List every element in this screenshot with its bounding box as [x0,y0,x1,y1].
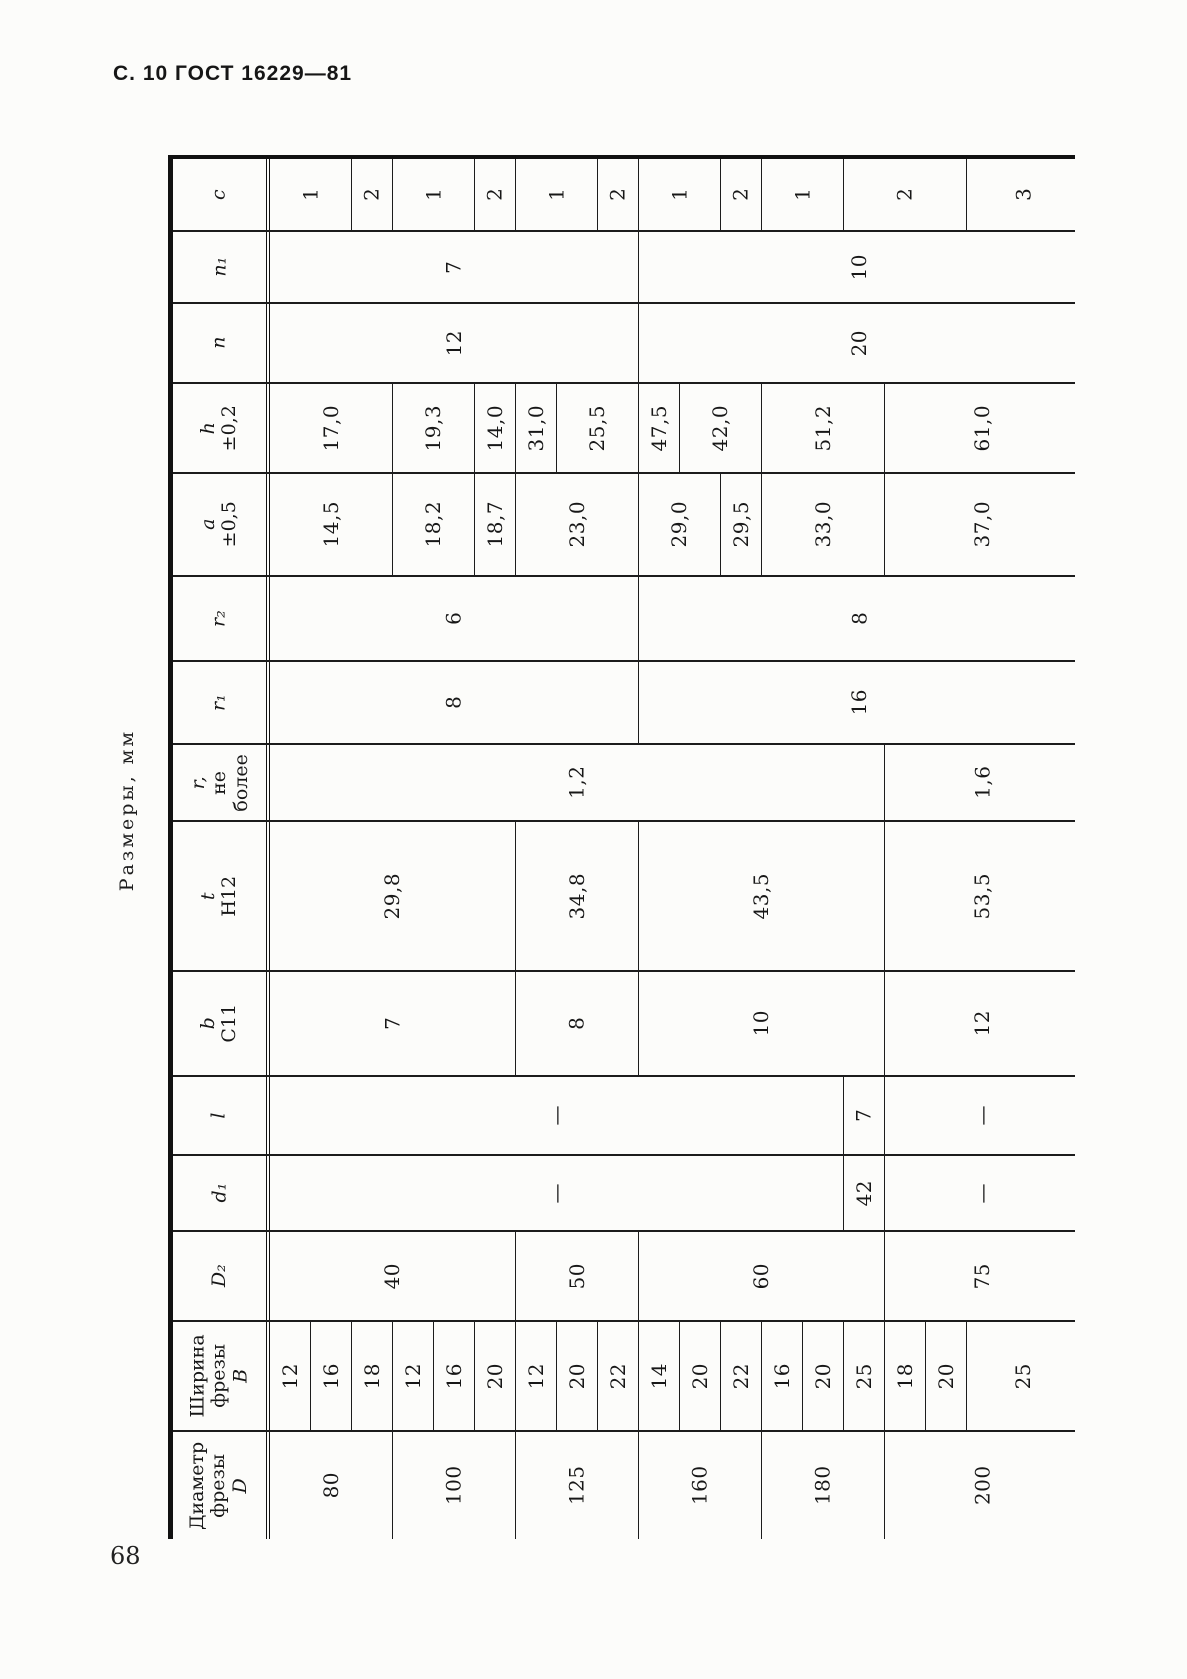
size-table: c12121212123n₁710n1220h±0,217,019,314,03… [168,155,1075,1539]
table-row-n1: n₁710 [173,232,1075,304]
cell-D-5: 180 [762,1432,885,1539]
cell-B-4: 12 [393,1322,434,1430]
row-header-l: l [173,1077,270,1154]
row-header-r: r,неболее [173,745,270,820]
cell-t-1: 29,8 [270,822,516,970]
table-row-h: h±0,217,019,314,031,025,547,542,051,261,… [173,384,1075,474]
cell-c-10: 2 [844,159,967,230]
cell-a-4: 23,0 [516,474,639,575]
cell-r2-2: 8 [639,577,1080,660]
cell-B-10: 14 [639,1322,680,1430]
table-row-d1: d₁—42— [173,1156,1075,1232]
cell-D-3: 125 [516,1432,639,1539]
cell-h-6: 47,5 [639,384,680,472]
table-row-B: ШиринафрезыB1216181216201220221420221620… [173,1322,1075,1432]
table-row-r: r,неболее1,21,6 [173,745,1075,822]
page-header: С. 10 ГОСТ 16229—81 [113,62,352,86]
cell-B-1: 12 [270,1322,311,1430]
cell-b-3: 10 [639,972,885,1075]
cell-r-1: 1,2 [270,745,885,820]
cell-B-12: 22 [721,1322,762,1430]
cell-b-2: 8 [516,972,639,1075]
cell-c-9: 1 [762,159,844,230]
cell-h-3: 14,0 [475,384,516,472]
table-row-t: tH1229,834,843,553,5 [173,822,1075,972]
cell-r1-1: 8 [270,662,639,743]
cell-r-2: 1,6 [885,745,1080,820]
cell-c-8: 2 [721,159,762,230]
cell-B-7: 12 [516,1322,557,1430]
cell-t-3: 43,5 [639,822,885,970]
cell-a-2: 18,2 [393,474,475,575]
table-row-r1: r₁816 [173,662,1075,745]
cell-h-7: 42,0 [680,384,762,472]
cell-b-4: 12 [885,972,1080,1075]
table-row-l: l—7— [173,1077,1075,1156]
table-row-D2: D₂40506075 [173,1232,1075,1322]
cell-B-13: 16 [762,1322,803,1430]
cell-c-2: 2 [352,159,393,230]
cell-B-11: 20 [680,1322,721,1430]
cell-c-5: 1 [516,159,598,230]
cell-B-17: 20 [926,1322,967,1430]
row-header-d1: d₁ [173,1156,270,1230]
cell-n1-2: 10 [639,232,1080,302]
cell-D2-2: 50 [516,1232,639,1320]
cell-l-2: 7 [844,1077,885,1154]
cell-r1-2: 16 [639,662,1080,743]
cell-B-2: 16 [311,1322,352,1430]
cell-D-1: 80 [270,1432,393,1539]
cell-a-5: 29,0 [639,474,721,575]
cell-B-8: 20 [557,1322,598,1430]
table-row-c: c12121212123 [173,159,1075,232]
row-header-r1: r₁ [173,662,270,743]
cell-D2-4: 75 [885,1232,1080,1320]
row-header-D: ДиаметрфрезыD [173,1432,270,1539]
row-header-a: a±0,5 [173,474,270,575]
cell-D2-3: 60 [639,1232,885,1320]
cell-a-7: 33,0 [762,474,885,575]
cell-c-1: 1 [270,159,352,230]
cell-h-5: 25,5 [557,384,639,472]
table-row-b: bC11781012 [173,972,1075,1077]
cell-D-6: 200 [885,1432,1080,1539]
cell-r2-1: 6 [270,577,639,660]
cell-a-3: 18,7 [475,474,516,575]
cell-c-6: 2 [598,159,639,230]
cell-a-6: 29,5 [721,474,762,575]
cell-h-8: 51,2 [762,384,885,472]
row-header-h: h±0,2 [173,384,270,472]
cell-B-5: 16 [434,1322,475,1430]
row-header-B: ШиринафрезыB [173,1322,270,1430]
cell-c-3: 1 [393,159,475,230]
cell-B-16: 18 [885,1322,926,1430]
cell-D2-1: 40 [270,1232,516,1320]
cell-B-15: 25 [844,1322,885,1430]
cell-D-4: 160 [639,1432,762,1539]
table-row-a: a±0,514,518,218,723,029,029,533,037,0 [173,474,1075,577]
cell-B-9: 22 [598,1322,639,1430]
row-header-n: n [173,304,270,382]
cell-B-18: 25 [967,1322,1080,1430]
cell-h-4: 31,0 [516,384,557,472]
cell-h-1: 17,0 [270,384,393,472]
cell-c-7: 1 [639,159,721,230]
page-number: 68 [110,1542,141,1570]
cell-h-9: 61,0 [885,384,1080,472]
cell-d1-1: — [270,1156,844,1230]
cell-t-4: 53,5 [885,822,1080,970]
table-row-D: ДиаметрфрезыD80100125160180200 [173,1432,1075,1539]
table-row-n: n1220 [173,304,1075,384]
cell-l-3: — [885,1077,1080,1154]
cell-l-1: — [270,1077,844,1154]
cell-n-2: 20 [639,304,1080,382]
cell-d1-2: 42 [844,1156,885,1230]
cell-n-1: 12 [270,304,639,382]
cell-B-3: 18 [352,1322,393,1430]
row-header-D2: D₂ [173,1232,270,1320]
cell-t-2: 34,8 [516,822,639,970]
cell-B-6: 20 [475,1322,516,1430]
row-header-n1: n₁ [173,232,270,302]
row-header-t: tH12 [173,822,270,970]
cell-b-1: 7 [270,972,516,1075]
cell-c-11: 3 [967,159,1080,230]
row-header-b: bC11 [173,972,270,1075]
cell-a-1: 14,5 [270,474,393,575]
cell-D-2: 100 [393,1432,516,1539]
cell-a-8: 37,0 [885,474,1080,575]
cell-h-2: 19,3 [393,384,475,472]
row-header-c: c [173,159,270,230]
row-header-r2: r₂ [173,577,270,660]
cell-B-14: 20 [803,1322,844,1430]
cell-n1-1: 7 [270,232,639,302]
cell-c-4: 2 [475,159,516,230]
cell-d1-3: — [885,1156,1080,1230]
table-caption: Размеры, мм [116,729,138,891]
table-row-r2: r₂68 [173,577,1075,662]
